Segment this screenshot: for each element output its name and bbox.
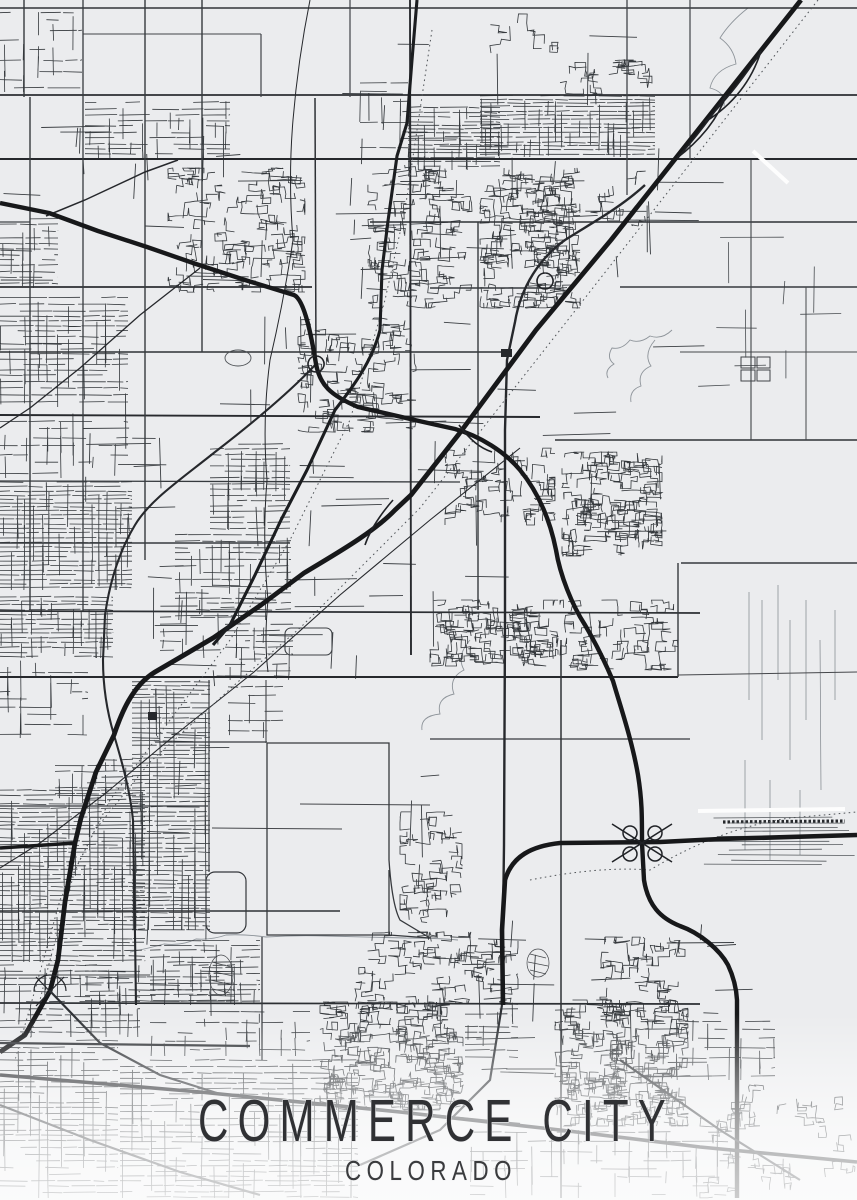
svg-text:COMMERCE CITY: COMMERCE CITY bbox=[198, 1087, 675, 1154]
svg-text:COLORADO: COLORADO bbox=[345, 1155, 517, 1186]
